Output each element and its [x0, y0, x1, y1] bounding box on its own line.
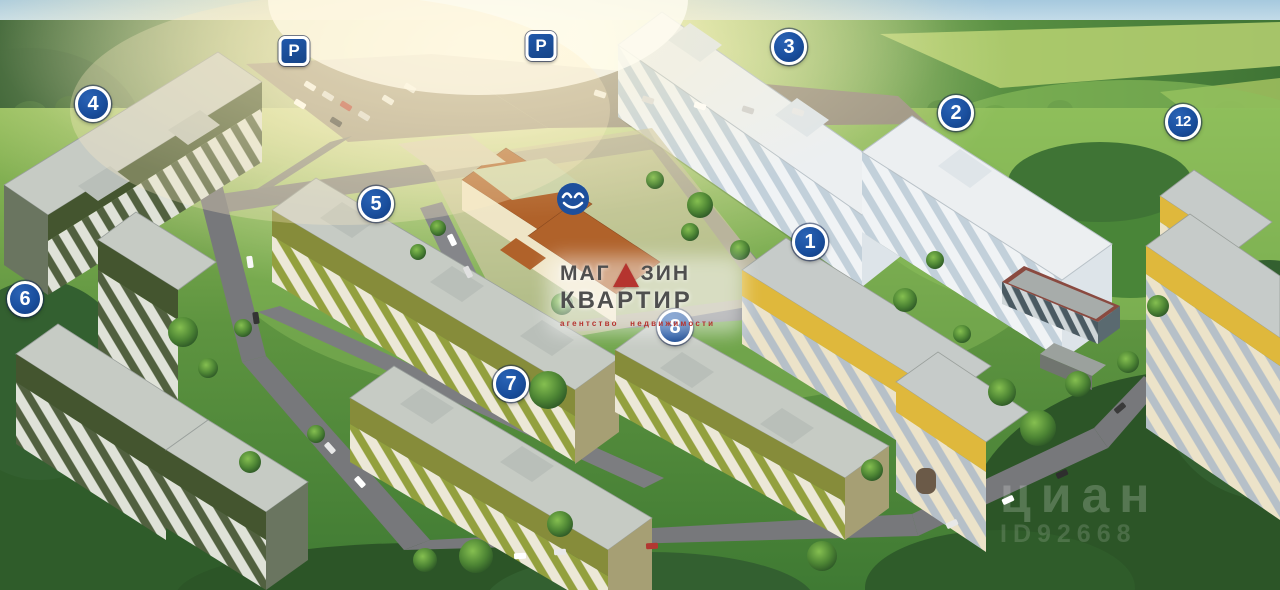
logo-line1-left: МАГ — [560, 262, 611, 286]
logo-line1: МАГЗИН — [560, 262, 730, 286]
building-badge-3: 3 — [771, 29, 807, 65]
masterplan-scene: МАГЗИН КВАРТИР агентство недвижимости ци… — [0, 0, 1280, 590]
building-badge-4: 4 — [75, 86, 111, 122]
building-badge-7: 7 — [493, 366, 529, 402]
logo-line1-right: ЗИН — [641, 262, 690, 286]
smiley-face-marker — [556, 182, 590, 216]
agency-logo: МАГЗИН КВАРТИР агентство недвижимости — [560, 262, 730, 328]
parking-sign-2: P — [526, 31, 557, 61]
building-badge-2: 2 — [938, 95, 974, 131]
building-badge-12: 12 — [1165, 104, 1201, 140]
parking-sign-1: P — [279, 36, 310, 66]
building-badge-6: 6 — [7, 281, 43, 317]
logo-subtitle: агентство недвижимости — [560, 319, 730, 328]
logo-line2: КВАРТИР — [560, 287, 730, 315]
logo-triangle-icon — [613, 263, 639, 287]
building-badge-5: 5 — [358, 186, 394, 222]
building-badge-1: 1 — [792, 224, 828, 260]
